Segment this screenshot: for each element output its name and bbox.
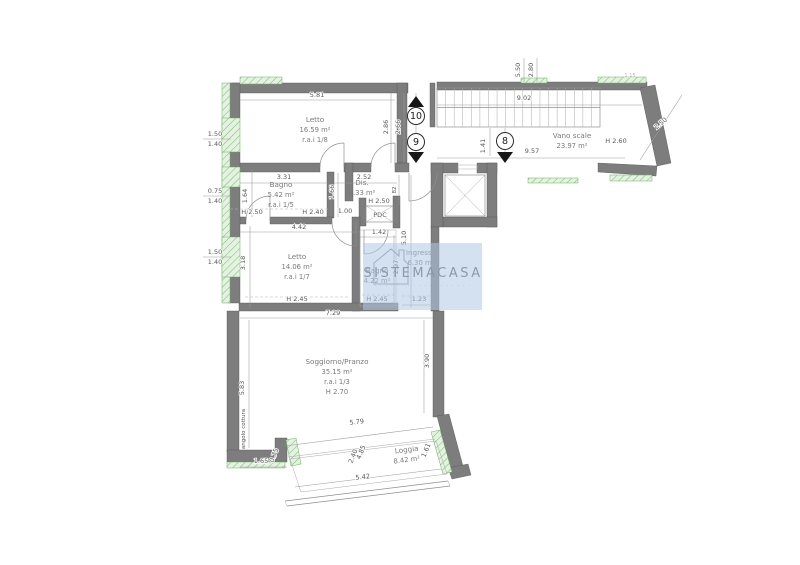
dim-label: 4.42 [292, 223, 306, 231]
dim-label: 0.75 [208, 187, 222, 195]
dim-label: 2.86 [382, 120, 390, 134]
dim-label: 1.50 [208, 130, 222, 138]
dim-label: 1.41 [479, 139, 487, 153]
marker-number: 9 [413, 137, 419, 148]
room-label-letto-1: Letto [306, 115, 324, 124]
dim-label: H 2.45 [286, 295, 307, 303]
dim-label: 1.64 [241, 189, 249, 203]
dim-label: PDC [373, 211, 387, 219]
room-label-soggiorno-pranzo: r.a.i 1/3 [324, 378, 350, 386]
dim-label: 2.66 [394, 120, 402, 134]
dim-label: H 2.50 [241, 208, 262, 216]
room-label-vano-scale: Vano scale [553, 131, 592, 140]
dim-label: 7.29 [326, 309, 340, 317]
dim-label: 1.65 [254, 457, 268, 465]
marker-number: 8 [502, 136, 508, 147]
dim-label: 1.50 [208, 248, 222, 256]
dim-label: 2.80 [527, 63, 535, 77]
room-label-bagno-1: 5.42 m² [268, 191, 295, 199]
room-label-bagno-1: r.a.i 1/5 [268, 201, 294, 209]
dim-label: 5.50 [514, 63, 522, 77]
room-label-letto-2: Letto [288, 252, 306, 261]
dim-label: H 2.60 [605, 137, 626, 145]
dim-label: angolo cottura [241, 409, 247, 449]
dim-label: 1.66 [328, 185, 336, 199]
dim-label: 3.31 [277, 173, 291, 181]
room-label-letto-1: 16.59 m² [300, 126, 331, 134]
dim-label: H 2.50 [368, 197, 389, 205]
dim-label: 9.02 [517, 94, 531, 102]
dim-label: 1.00 [338, 207, 352, 215]
room-label-soggiorno-pranzo: 35.15 m² [322, 368, 353, 376]
dim-label: H 2.40 [302, 208, 323, 216]
dim-label: 2.52 [357, 173, 371, 181]
room-label-soggiorno-pranzo: H 2.70 [326, 388, 348, 396]
room-label-disimpegno: 4.33 m² [349, 189, 376, 197]
room-label-bagno-1: Bagno [270, 180, 293, 189]
dim-label: 1.40 [208, 197, 222, 205]
watermark: SISTEMACASA · · · · · · · · · · · · · · … [363, 243, 483, 310]
watermark-microtext: · · · · · · · · · · · · · · · · · · [374, 283, 471, 288]
marker-number: 10 [410, 111, 422, 122]
floor-plan-drawing: Letto16.59 m²r.a.i 1/8Bagno5.42 m²r.a.i … [0, 0, 800, 565]
watermark-brand: SISTEMACASA [363, 266, 482, 281]
room-label-soggiorno-pranzo: Soggiorno/Pranzo [306, 357, 369, 366]
dim-label: 3.90 [423, 354, 431, 368]
dim-label: 1.40 [208, 258, 222, 266]
room-label-vano-scale: 23.97 m² [557, 142, 588, 150]
room-label-letto-2: 14.06 m² [282, 263, 313, 271]
dim-label: 1.42 [372, 228, 386, 236]
dim-label: 9.57 [525, 147, 539, 155]
dim-label: 3.18 [239, 256, 247, 270]
dim-label: 5.81 [310, 91, 324, 99]
dim-label: 1.40 [208, 140, 222, 148]
dim-label: 5.83 [238, 381, 246, 395]
dim-label: 1.15 [624, 73, 635, 79]
room-label-letto-2: r.a.i 1/7 [284, 273, 310, 281]
dim-label: 82 [392, 187, 398, 194]
room-label-letto-1: r.a.i 1/8 [302, 136, 328, 144]
